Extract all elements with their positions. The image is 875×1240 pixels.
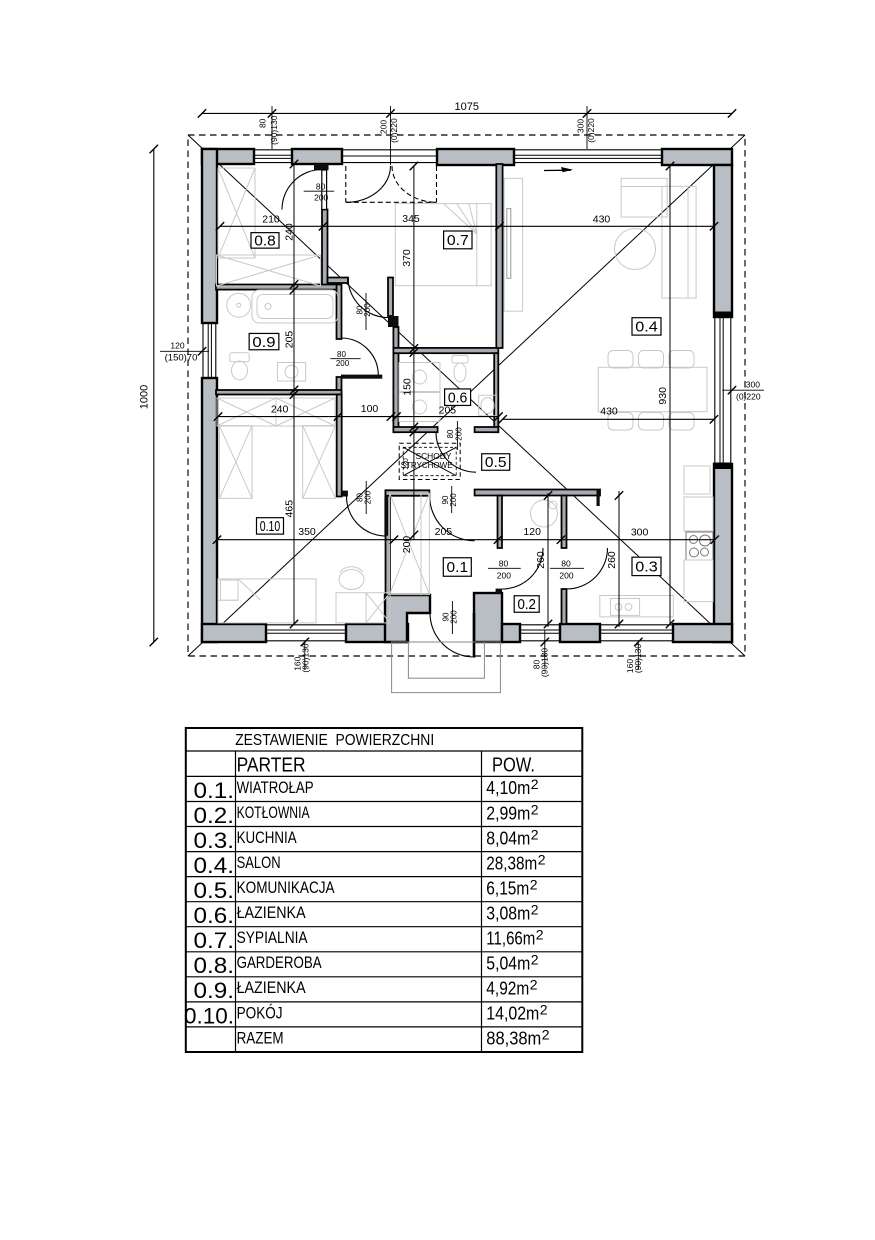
- svg-text:2: 2: [531, 826, 539, 842]
- svg-text:200: 200: [455, 427, 464, 441]
- svg-text:200: 200: [449, 493, 458, 507]
- svg-text:88,38m: 88,38m: [486, 1028, 541, 1049]
- svg-text:2,99m: 2,99m: [486, 802, 530, 823]
- svg-text:ŁAZIENKA: ŁAZIENKA: [237, 903, 307, 922]
- svg-text:80: 80: [561, 558, 571, 568]
- svg-text:(90)130: (90)130: [301, 643, 311, 673]
- svg-text:240: 240: [283, 223, 295, 241]
- svg-text:2: 2: [542, 1027, 550, 1043]
- svg-text:0.7.: 0.7.: [194, 928, 235, 953]
- svg-text:0.4.: 0.4.: [194, 853, 235, 878]
- svg-text:RAZEM: RAZEM: [237, 1028, 284, 1047]
- svg-text:0.4: 0.4: [635, 319, 658, 336]
- svg-text:SCHODY: SCHODY: [416, 452, 453, 461]
- svg-text:(90)130: (90)130: [633, 644, 643, 674]
- svg-text:370: 370: [401, 249, 413, 267]
- svg-text:930: 930: [657, 387, 669, 405]
- svg-text:2: 2: [536, 927, 544, 943]
- svg-text:KOMUNIKACJA: KOMUNIKACJA: [237, 878, 336, 897]
- svg-text:120: 120: [403, 458, 410, 470]
- svg-text:200: 200: [378, 120, 388, 134]
- svg-text:14,02m: 14,02m: [486, 1003, 539, 1024]
- svg-text:200: 200: [363, 490, 372, 504]
- svg-text:0.5.: 0.5.: [194, 878, 235, 903]
- svg-text:200: 200: [336, 359, 350, 368]
- svg-text:200: 200: [401, 536, 413, 554]
- svg-text:3,08m: 3,08m: [486, 903, 530, 924]
- svg-text:80: 80: [499, 558, 509, 568]
- svg-text:KOTŁOWNIA: KOTŁOWNIA: [237, 803, 310, 822]
- svg-text:WIATROŁAP: WIATROŁAP: [237, 778, 314, 797]
- svg-text:200: 200: [450, 610, 459, 624]
- svg-text:2: 2: [530, 876, 538, 892]
- svg-text:200: 200: [314, 192, 328, 202]
- svg-text:0.8: 0.8: [254, 233, 276, 250]
- svg-text:GARDEROBA: GARDEROBA: [237, 953, 323, 972]
- svg-text:120: 120: [523, 526, 541, 538]
- svg-text:2: 2: [540, 1002, 548, 1018]
- svg-text:205: 205: [283, 331, 295, 349]
- svg-text:260: 260: [606, 551, 618, 569]
- svg-text:POKÓJ: POKÓJ: [237, 1003, 283, 1022]
- svg-text:0.8.: 0.8.: [194, 953, 235, 978]
- svg-text:0.5: 0.5: [485, 454, 507, 471]
- svg-text:2: 2: [531, 776, 539, 792]
- svg-text:0.7: 0.7: [447, 232, 469, 249]
- svg-text:345: 345: [402, 213, 420, 225]
- svg-text:350: 350: [298, 526, 316, 538]
- svg-text:0.9: 0.9: [252, 334, 275, 351]
- svg-text:210: 210: [262, 214, 280, 226]
- svg-text:80: 80: [316, 181, 326, 191]
- svg-text:28,38m: 28,38m: [486, 852, 537, 873]
- svg-text:(150)70: (150)70: [165, 352, 198, 363]
- svg-text:80: 80: [337, 350, 346, 359]
- svg-text:(0)220: (0)220: [736, 391, 761, 401]
- svg-text:SYPIALNIA: SYPIALNIA: [237, 928, 309, 947]
- svg-text:SALON: SALON: [237, 853, 281, 872]
- svg-text:430: 430: [593, 214, 611, 226]
- svg-text:11,66m: 11,66m: [486, 928, 535, 949]
- svg-text:0.2: 0.2: [517, 596, 536, 613]
- svg-text:260: 260: [535, 551, 547, 569]
- svg-text:0.3: 0.3: [635, 559, 658, 576]
- svg-text:465: 465: [283, 500, 295, 518]
- svg-text:6,15m: 6,15m: [486, 877, 529, 898]
- svg-text:120: 120: [170, 341, 184, 351]
- svg-text:(90)130: (90)130: [540, 648, 550, 678]
- svg-text:150: 150: [401, 378, 413, 396]
- svg-text:80: 80: [258, 118, 268, 128]
- svg-text:205: 205: [435, 526, 453, 538]
- svg-text:PARTER: PARTER: [237, 755, 306, 777]
- svg-text:240: 240: [271, 404, 289, 416]
- svg-text:200: 200: [363, 303, 372, 317]
- svg-text:1000: 1000: [139, 385, 151, 409]
- svg-text:0.6.: 0.6.: [194, 903, 235, 928]
- svg-text:1075: 1075: [455, 101, 479, 113]
- svg-text:2: 2: [530, 977, 538, 993]
- svg-text:0.9.: 0.9.: [194, 978, 235, 1003]
- svg-text:100: 100: [361, 403, 379, 415]
- svg-text:ŁAZIENKA: ŁAZIENKA: [237, 978, 307, 997]
- svg-text:ZESTAWIENIE POWIERZCHNI: ZESTAWIENIE POWIERZCHNI: [235, 732, 434, 749]
- svg-text:0.6: 0.6: [448, 389, 468, 406]
- svg-text:300: 300: [631, 526, 649, 538]
- svg-text:0.10: 0.10: [260, 518, 281, 535]
- svg-text:0.2.: 0.2.: [194, 803, 235, 828]
- svg-text:2: 2: [531, 902, 539, 918]
- svg-text:430: 430: [600, 406, 618, 418]
- svg-text:2: 2: [531, 952, 539, 968]
- svg-text:(0)220: (0)220: [389, 118, 399, 143]
- svg-text:2: 2: [531, 801, 539, 817]
- svg-text:(90)130: (90)130: [269, 115, 279, 145]
- svg-text:5,04m: 5,04m: [486, 953, 530, 974]
- svg-text:0.10.: 0.10.: [184, 1003, 234, 1028]
- svg-text:(0)220: (0)220: [586, 118, 596, 143]
- svg-text:200: 200: [497, 570, 511, 580]
- svg-text:200: 200: [559, 570, 573, 580]
- svg-text:0.1.: 0.1.: [194, 778, 235, 803]
- svg-text:300: 300: [576, 119, 586, 133]
- svg-text:0.1: 0.1: [447, 559, 469, 576]
- svg-text:300: 300: [746, 380, 760, 390]
- svg-text:0.3.: 0.3.: [194, 828, 235, 853]
- svg-text:4,10m: 4,10m: [486, 777, 530, 798]
- svg-text:KUCHNIA: KUCHNIA: [237, 828, 298, 847]
- svg-text:POW.: POW.: [492, 755, 535, 777]
- svg-text:4,92m: 4,92m: [486, 978, 529, 999]
- svg-text:2: 2: [538, 851, 546, 867]
- svg-text:8,04m: 8,04m: [486, 827, 530, 848]
